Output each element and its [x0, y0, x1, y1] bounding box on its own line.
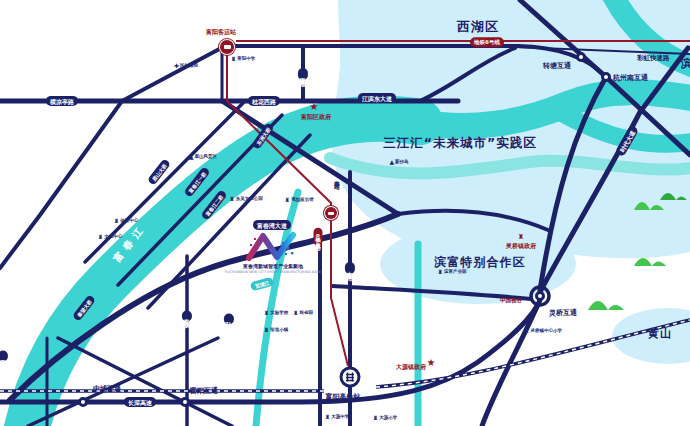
district-label-sanjianghui: 三江汇“未来城市”实践区: [383, 137, 536, 150]
road-label-guihua-west: 桂花西路: [248, 96, 280, 106]
poi-label-culture-center: 文化中心: [104, 235, 122, 240]
map-geometry: [0, 0, 690, 426]
building-icon: ♜: [114, 218, 119, 224]
mountain-icon: [634, 258, 666, 266]
poi-label-zhizao-town: 智造小镇: [270, 328, 288, 333]
mountain-icon: ▲: [389, 159, 394, 165]
building-icon: ♜: [229, 196, 234, 202]
building-icon: ♜: [264, 310, 269, 316]
road-label-sunquan: 孙权路: [224, 314, 234, 325]
poi-label-kechuang-park: 科创园: [299, 311, 313, 316]
district-label-binfu: 滨富特别合作区: [435, 256, 526, 268]
road-label-jiangbin-east: 江滨东大道: [358, 93, 396, 103]
building-icon: ♜: [293, 310, 298, 316]
building-icon: ♜: [264, 327, 269, 333]
district-label-binjiang: 滨江区: [681, 58, 690, 69]
lingqiao-gov-label: 灵桥镇政府: [506, 243, 536, 249]
rail-station-icon: [340, 367, 361, 388]
southwest-diagonal-1: [58, 338, 232, 426]
metro-line6-label: 地铁6号线: [470, 37, 504, 47]
road-label-hengliangting: 横凉亭路: [46, 96, 78, 106]
road-label-enbo: 恩波大道: [298, 68, 308, 80]
poi-label-dayuan-primary: 大源小学: [379, 416, 397, 421]
rail-tracks-glyph: [345, 372, 356, 383]
building-icon: ♜: [524, 328, 529, 334]
dayuan-gov-label: 大源镇政府: [396, 364, 426, 370]
poi-label-lushan-scenic: 鹿山风景区: [195, 155, 218, 160]
metro-station-icon: [325, 207, 337, 219]
fuyang-gov-star-icon: ★: [310, 102, 319, 112]
road-label-daqiao-south: 大桥南路: [345, 262, 355, 274]
interchange-node-fuyang: [180, 397, 190, 407]
interchange-label-zhuantang: 转塘互通: [543, 63, 571, 70]
building-icon: ♜: [373, 415, 378, 421]
building-icon: ♜: [325, 414, 330, 420]
fuyang-gov-label: 富阳区政府: [301, 114, 331, 120]
bus-station-icon: [220, 40, 234, 54]
interchange-node-hangzhounan: [601, 72, 611, 82]
poi-label-dayuan-school: 大源中学: [331, 415, 349, 420]
road-label-changshen: 长深高速: [124, 397, 156, 407]
interchange-node-zhuantang: [576, 52, 586, 62]
rail-station-label: 富阳高铁站: [326, 394, 361, 401]
poi-label-fuyang-school: 富阳中学: [237, 57, 255, 62]
interchange-label-hangzhounan: 杭州南互通: [613, 75, 648, 82]
dayuan-gov-star-icon: ★: [427, 358, 436, 368]
interchange-node-zhongbu: [78, 397, 88, 407]
poi-label-experiment-school: 实验学校: [270, 311, 288, 316]
poi-label-binfu-park: 滨富产业园: [444, 270, 467, 275]
building-icon: ♜: [231, 56, 236, 62]
lingqiao-gov-icon: ♜: [518, 234, 524, 241]
interchange-label-zhongbu: 中埔互通: [93, 386, 121, 393]
metro-station-label: 富春湾站: [334, 176, 340, 180]
building-icon: ♜: [98, 234, 103, 240]
mountain-icon: ▲: [189, 154, 194, 160]
building-icon: ♜: [285, 197, 290, 203]
poi-label-sports-center: 体育中心: [120, 219, 138, 224]
poi-label-planning-hall: 规划展示馆: [291, 198, 314, 203]
poi-label-fubaoyuan: 区妇保院: [180, 64, 198, 69]
interchange-label-lingqiao: 灵桥互通: [549, 310, 577, 317]
project-logo: [244, 230, 302, 262]
map-canvas: 西湖区 滨江区 三江汇“未来城市”实践区 滨富特别合作区 黄山 横凉亭路 桂花西…: [0, 0, 690, 426]
road-label-chunyong: 春永线: [182, 311, 192, 322]
building-icon: ♜: [438, 269, 443, 275]
interchange-label-fuyang: 富阳互通: [190, 388, 218, 395]
district-label-huangshan: 黄山: [648, 328, 672, 339]
poi-label-lingqiao-school: 灵桥镇中心小学: [530, 329, 562, 334]
interchange-node-lingqiao: [535, 291, 545, 301]
china-vision-label: 中国视谷: [500, 298, 522, 304]
poi-label-dongwu-park: 东吴文化公园: [236, 197, 263, 202]
logo-subtitle: FUCHUNWAN NEW CITY SMART MANUFACTURING B…: [225, 271, 321, 275]
mountain-icon: [588, 301, 624, 310]
logo-title: 富春湾新城智造产业集聚地: [243, 264, 303, 269]
road-label-caihong: 彩虹快速路: [637, 55, 670, 62]
road-label-fuchunwan: 富春湾大道: [253, 220, 291, 230]
district-label-xihu: 西湖区: [457, 20, 499, 33]
bus-station-label: 富阳客运站: [206, 29, 236, 35]
hospital-icon: ✚: [174, 63, 179, 69]
poi-label-xinsha-island: 新沙岛: [395, 160, 409, 165]
metro-line6-phase2-label: 地铁6号线二期: [314, 228, 323, 246]
